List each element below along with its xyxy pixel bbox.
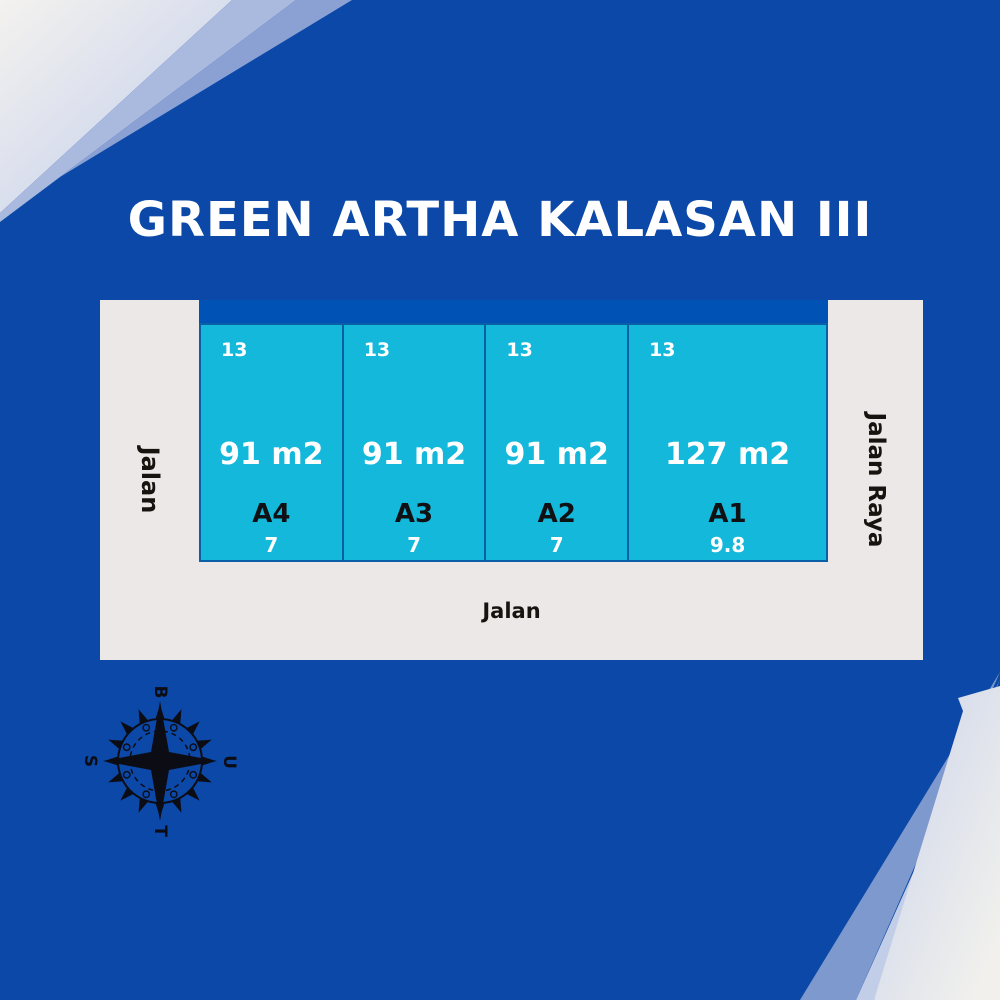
plot-depth-label: 13 — [649, 339, 675, 361]
plot-width-label: 7 — [486, 533, 627, 557]
plot-area-label: 127 m2 — [629, 437, 826, 472]
plot-a1: 13 127 m2 A1 9.8 — [629, 325, 826, 560]
compass-star — [103, 701, 217, 821]
compass-rose: B U T S — [60, 661, 260, 861]
plot-width-label: 7 — [344, 533, 485, 557]
plot-id-label: A2 — [486, 499, 627, 529]
compass-letter-west-side: S — [80, 755, 100, 767]
plot-id-label: A4 — [201, 499, 342, 529]
plot-area-label: 91 m2 — [201, 437, 342, 472]
plot-depth-label: 13 — [364, 339, 390, 361]
compass-letter-north-side: B — [150, 686, 170, 699]
plot-row: 13 91 m2 A4 7 13 91 m2 A3 7 13 91 m2 A2 … — [199, 323, 828, 562]
plot-depth-label: 13 — [506, 339, 532, 361]
setback-strip — [199, 300, 828, 323]
plot-area-label: 91 m2 — [486, 437, 627, 472]
site-plan-poster: GREEN ARTHA KALASAN III Jalan Jalan Raya… — [0, 0, 1000, 1000]
plot-a3: 13 91 m2 A3 7 — [344, 325, 487, 560]
plot-id-label: A3 — [344, 499, 485, 529]
plot-depth-label: 13 — [221, 339, 247, 361]
plot-id-label: A1 — [629, 499, 826, 529]
bottom-right-wedge-light — [874, 686, 1000, 1000]
site-plan: Jalan Jalan Raya Jalan 13 91 m2 A4 7 13 … — [100, 300, 923, 660]
compass-letter-south-side: T — [150, 825, 170, 837]
road-right-label: Jalan Raya — [863, 413, 889, 548]
road-bottom: Jalan — [100, 562, 923, 660]
compass-letter-east-side: U — [219, 755, 239, 769]
plot-a2: 13 91 m2 A2 7 — [486, 325, 629, 560]
road-bottom-label: Jalan — [100, 599, 923, 623]
plot-a4: 13 91 m2 A4 7 — [201, 325, 344, 560]
plot-width-label: 9.8 — [629, 533, 826, 557]
page-title: GREEN ARTHA KALASAN III — [0, 194, 1000, 247]
plot-area-label: 91 m2 — [344, 437, 485, 472]
road-left-label: Jalan — [136, 447, 164, 514]
plot-width-label: 7 — [201, 533, 342, 557]
